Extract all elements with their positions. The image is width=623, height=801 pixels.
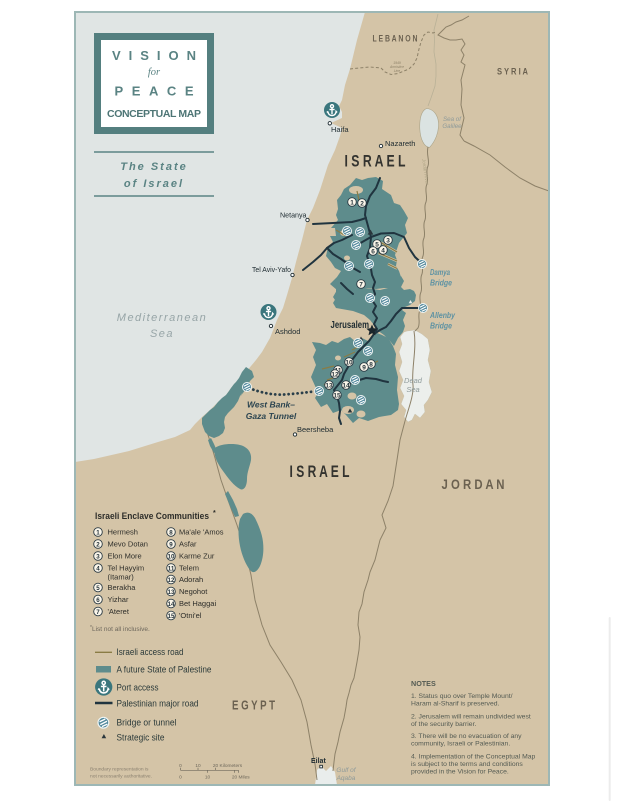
svg-text:is subject to the terms and co: is subject to the terms and conditions [411,761,523,768]
svg-text:Allenby: Allenby [429,310,456,320]
svg-text:Bet Haggai: Bet Haggai [179,599,216,608]
svg-text:Nazareth: Nazareth [385,139,415,148]
svg-text:Mediterranean: Mediterranean [117,312,207,324]
svg-text:7: 7 [359,281,363,288]
svg-text:Palestinian major road: Palestinian major road [117,699,199,709]
svg-text:Haram al-Sharif is preserved.: Haram al-Sharif is preserved. [411,701,500,708]
svg-text:'Ateret: 'Ateret [108,607,130,616]
svg-text:Dead: Dead [404,376,423,385]
svg-text:14: 14 [342,382,350,389]
svg-text:3: 3 [386,237,390,244]
svg-text:1: 1 [96,529,100,536]
svg-text:11: 11 [168,565,175,572]
svg-text:4: 4 [96,565,100,572]
svg-text:6: 6 [371,248,375,255]
svg-text:Hermesh: Hermesh [108,528,138,537]
svg-text:The State: The State [120,161,188,173]
svg-text:Line: Line [394,69,401,73]
svg-text:Kilometers: Kilometers [220,763,243,769]
svg-text:Sea: Sea [150,328,174,340]
svg-text:4. Implementation of the Conce: 4. Implementation of the Conceptual Map [411,753,536,760]
svg-text:of Israel: of Israel [124,178,184,190]
svg-text:Netanya: Netanya [280,211,307,220]
svg-text:S Y R I A: S Y R I A [497,67,528,78]
svg-text:Asfar: Asfar [179,540,197,549]
svg-text:14: 14 [168,601,175,608]
svg-text:not necessarily authoritative.: not necessarily authoritative. [90,774,152,780]
svg-text:2. Jerusalem will remain undiv: 2. Jerusalem will remain undivided west [411,713,531,720]
svg-text:Sea: Sea [406,385,419,394]
svg-text:I S R A E L: I S R A E L [345,153,406,171]
svg-text:10: 10 [205,775,211,781]
svg-text:CONCEPTUAL MAP: CONCEPTUAL MAP [107,108,201,120]
svg-text:Haifa: Haifa [331,125,349,134]
svg-text:Yizhar: Yizhar [108,595,129,604]
svg-text:15: 15 [168,613,175,620]
svg-text:*List not all inclusive.: *List not all inclusive. [90,625,150,633]
svg-text:Negohot: Negohot [179,587,208,596]
svg-text:Beersheba: Beersheba [297,425,334,434]
svg-text:3: 3 [96,553,100,560]
svg-text:13: 13 [168,589,175,596]
svg-text:8: 8 [169,529,173,536]
svg-text:Strategic site: Strategic site [117,733,165,743]
svg-text:Berakha: Berakha [108,583,137,592]
svg-text:9: 9 [169,541,173,548]
svg-text:3. There will be no evacuation: 3. There will be no evacuation of any [411,733,522,740]
svg-text:Jerusalem: Jerusalem [331,320,370,331]
svg-text:J O R D A N: J O R D A N [442,477,505,492]
svg-text:Tel Aviv-Yafo: Tel Aviv-Yafo [252,265,291,274]
svg-text:5: 5 [96,585,100,592]
svg-text:7: 7 [96,609,100,616]
svg-text:9: 9 [362,364,366,371]
svg-text:for: for [148,67,161,78]
svg-text:13: 13 [325,382,333,389]
svg-text:Sea of: Sea of [443,116,462,123]
svg-text:(Itamar): (Itamar) [108,573,135,582]
svg-text:of the security barrier.: of the security barrier. [411,721,476,728]
svg-text:Israeli Enclave Communities: Israeli Enclave Communities [95,511,209,521]
svg-text:*: * [213,510,216,517]
svg-text:Boundary representation is: Boundary representation is [90,767,149,773]
svg-text:Ma'ale 'Amos: Ma'ale 'Amos [179,528,224,537]
svg-text:8: 8 [369,361,373,368]
svg-text:Israeli access road: Israeli access road [117,647,184,657]
svg-text:Elon More: Elon More [108,552,142,561]
svg-text:2: 2 [96,541,100,548]
svg-text:1. Status quo over Temple Moun: 1. Status quo over Temple Mount/ [411,693,513,700]
svg-text:Damya: Damya [430,267,450,277]
svg-text:Aqaba: Aqaba [336,775,356,782]
svg-text:4: 4 [381,247,385,254]
svg-text:Bridge: Bridge [430,278,452,288]
svg-text:E G Y P T: E G Y P T [232,698,275,713]
svg-text:Bridge: Bridge [430,321,452,331]
svg-text:Adorah: Adorah [179,575,203,584]
svg-text:West Bank–: West Bank– [247,400,295,410]
svg-text:Karme Zur: Karme Zur [179,552,215,561]
svg-text:1: 1 [350,199,354,206]
svg-text:Galilee: Galilee [442,123,462,130]
svg-text:Eilat: Eilat [311,758,326,765]
svg-text:community, Israeli or Palestin: community, Israeli or Palestinian. [411,741,510,748]
svg-text:L E B A N O N: L E B A N O N [373,34,418,45]
svg-text:12: 12 [331,371,339,378]
svg-text:A future State of Palestine: A future State of Palestine [117,665,212,675]
svg-text:10: 10 [168,553,175,560]
svg-text:Bridge or tunnel: Bridge or tunnel [117,718,177,728]
svg-text:Telem: Telem [179,564,199,573]
svg-text:Port access: Port access [117,683,159,693]
svg-text:Gaza Tunnel: Gaza Tunnel [246,411,297,421]
svg-text:Mevo Dotan: Mevo Dotan [108,540,148,549]
svg-text:provided in the Vision for Pea: provided in the Vision for Peace. [411,769,509,776]
svg-text:12: 12 [168,577,175,584]
svg-text:10: 10 [345,359,353,366]
svg-text:Gulf of: Gulf of [336,767,356,774]
svg-text:'Otni'el: 'Otni'el [179,611,202,620]
svg-text:6: 6 [96,597,100,604]
svg-text:Ashdod: Ashdod [275,327,300,336]
svg-text:15: 15 [333,392,341,399]
svg-text:Tel Hayyim: Tel Hayyim [108,564,145,573]
svg-text:0: 0 [179,775,182,781]
svg-text:20: 20 [232,775,238,781]
svg-text:2: 2 [360,200,364,207]
svg-text:Miles: Miles [239,775,251,781]
svg-text:NOTES: NOTES [411,679,436,688]
svg-text:I S R A E L: I S R A E L [290,463,350,481]
